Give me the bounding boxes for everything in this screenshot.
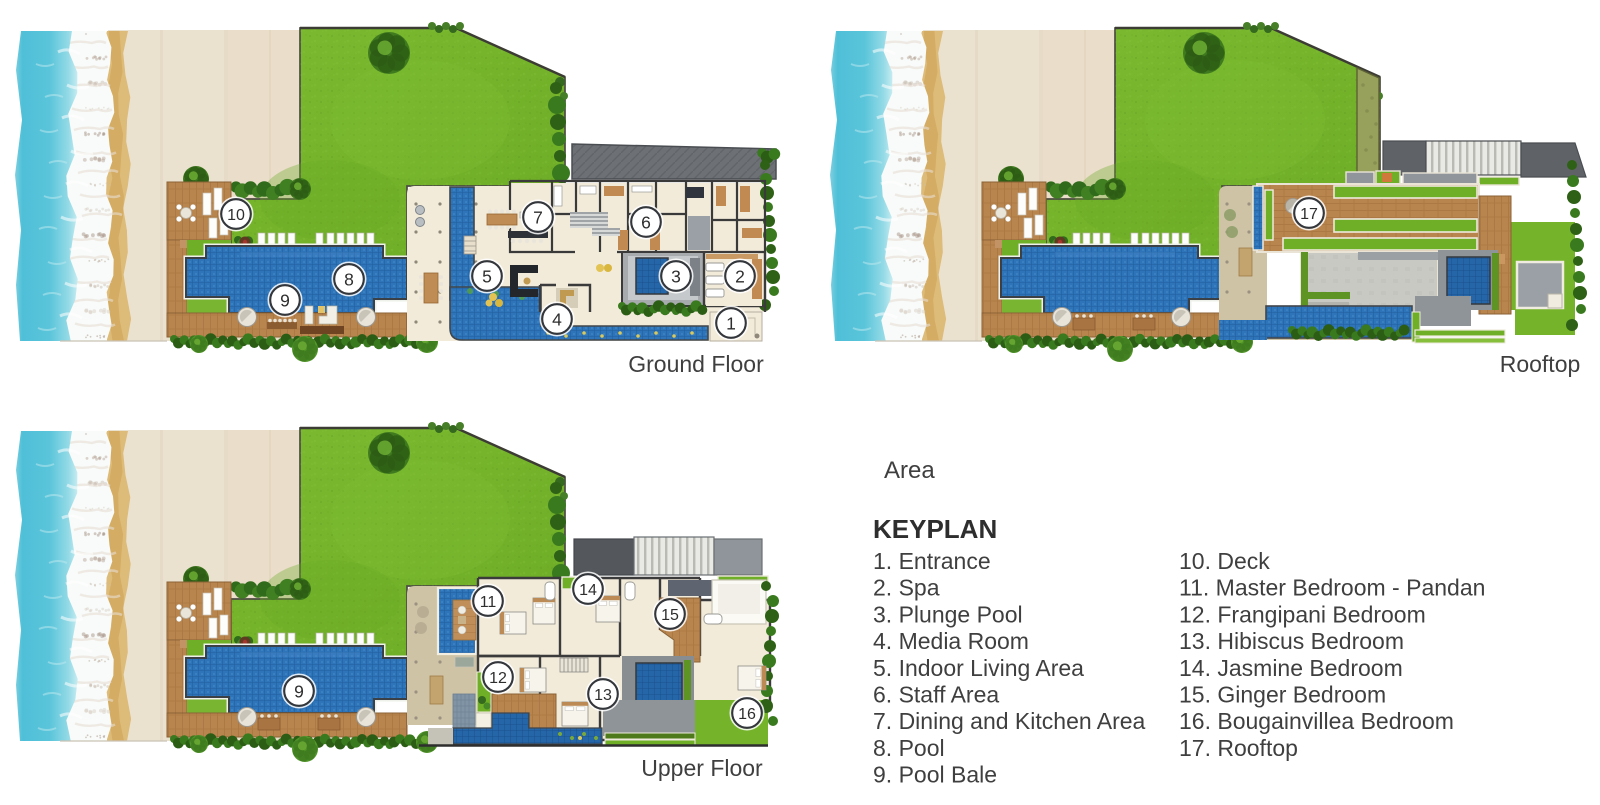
- svg-text:KEYPLAN: KEYPLAN: [873, 514, 997, 544]
- svg-text:10: 10: [227, 207, 245, 224]
- svg-text:8. Pool: 8. Pool: [873, 735, 945, 761]
- svg-text:4. Media Room: 4. Media Room: [873, 628, 1029, 654]
- svg-text:16. Bougainvillea Bedroom: 16. Bougainvillea Bedroom: [1179, 708, 1454, 734]
- svg-text:15: 15: [661, 607, 679, 624]
- svg-text:11: 11: [480, 594, 497, 611]
- svg-text:15. Ginger Bedroom: 15. Ginger Bedroom: [1179, 682, 1386, 708]
- svg-text:1: 1: [726, 313, 736, 333]
- svg-text:12: 12: [489, 670, 507, 687]
- svg-text:4: 4: [552, 309, 562, 329]
- svg-text:14. Jasmine Bedroom: 14. Jasmine Bedroom: [1179, 655, 1403, 681]
- svg-text:17. Rooftop: 17. Rooftop: [1179, 735, 1298, 761]
- svg-text:13. Hibiscus Bedroom: 13. Hibiscus Bedroom: [1179, 628, 1404, 654]
- svg-text:9: 9: [280, 290, 290, 310]
- svg-text:17: 17: [1300, 206, 1318, 223]
- svg-text:10. Deck: 10. Deck: [1179, 548, 1270, 574]
- svg-text:Upper Floor: Upper Floor: [641, 755, 763, 781]
- svg-text:11. Master Bedroom - Pandan: 11. Master Bedroom - Pandan: [1179, 575, 1485, 601]
- svg-text:9. Pool Bale: 9. Pool Bale: [873, 762, 997, 788]
- svg-text:Area: Area: [884, 457, 935, 484]
- svg-text:6: 6: [641, 212, 651, 232]
- svg-text:7. Dining and Kitchen Area: 7. Dining and Kitchen Area: [873, 708, 1146, 734]
- svg-text:12. Frangipani Bedroom: 12. Frangipani Bedroom: [1179, 601, 1426, 627]
- svg-text:2: 2: [735, 266, 745, 286]
- svg-text:5: 5: [482, 266, 492, 286]
- svg-text:3. Plunge Pool: 3. Plunge Pool: [873, 601, 1023, 627]
- svg-text:1. Entrance: 1. Entrance: [873, 548, 991, 574]
- svg-text:6. Staff Area: 6. Staff Area: [873, 682, 999, 708]
- svg-text:2. Spa: 2. Spa: [873, 575, 940, 601]
- svg-text:8: 8: [344, 269, 354, 289]
- svg-text:5. Indoor Living Area: 5. Indoor Living Area: [873, 655, 1084, 681]
- svg-text:3: 3: [671, 266, 681, 286]
- svg-text:Rooftop: Rooftop: [1500, 351, 1581, 377]
- svg-text:Ground Floor: Ground Floor: [628, 351, 764, 377]
- svg-text:16: 16: [738, 706, 756, 723]
- svg-text:14: 14: [579, 582, 597, 599]
- svg-text:13: 13: [594, 687, 612, 704]
- svg-text:9: 9: [294, 681, 304, 701]
- svg-text:7: 7: [533, 207, 543, 227]
